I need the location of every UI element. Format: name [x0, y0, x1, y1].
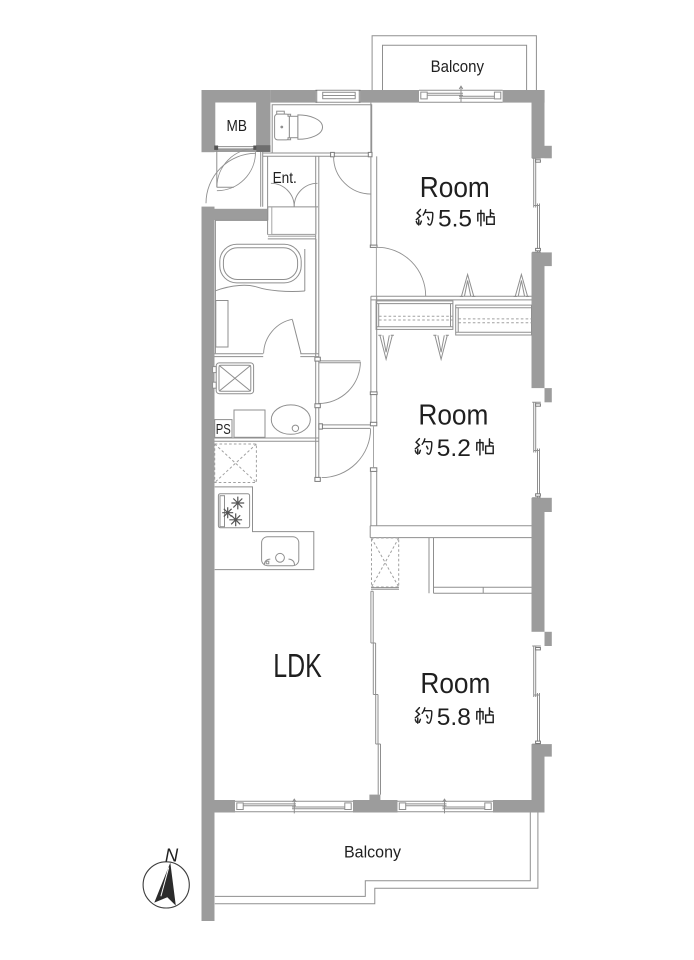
- svg-text:Balcony: Balcony: [431, 58, 485, 76]
- svg-text:5.5: 5.5: [438, 206, 472, 233]
- svg-text:MB: MB: [227, 118, 247, 135]
- svg-text:LDK: LDK: [273, 647, 322, 684]
- svg-text:Ent.: Ent.: [273, 170, 297, 187]
- svg-text:Room: Room: [420, 172, 490, 204]
- svg-text:Room: Room: [420, 668, 490, 700]
- svg-text:5.2: 5.2: [437, 435, 471, 462]
- svg-text:5.8: 5.8: [437, 704, 471, 731]
- svg-text:Room: Room: [418, 400, 488, 432]
- svg-text:N: N: [165, 845, 179, 866]
- svg-text:Balcony: Balcony: [344, 842, 401, 861]
- svg-text:PS: PS: [216, 421, 231, 438]
